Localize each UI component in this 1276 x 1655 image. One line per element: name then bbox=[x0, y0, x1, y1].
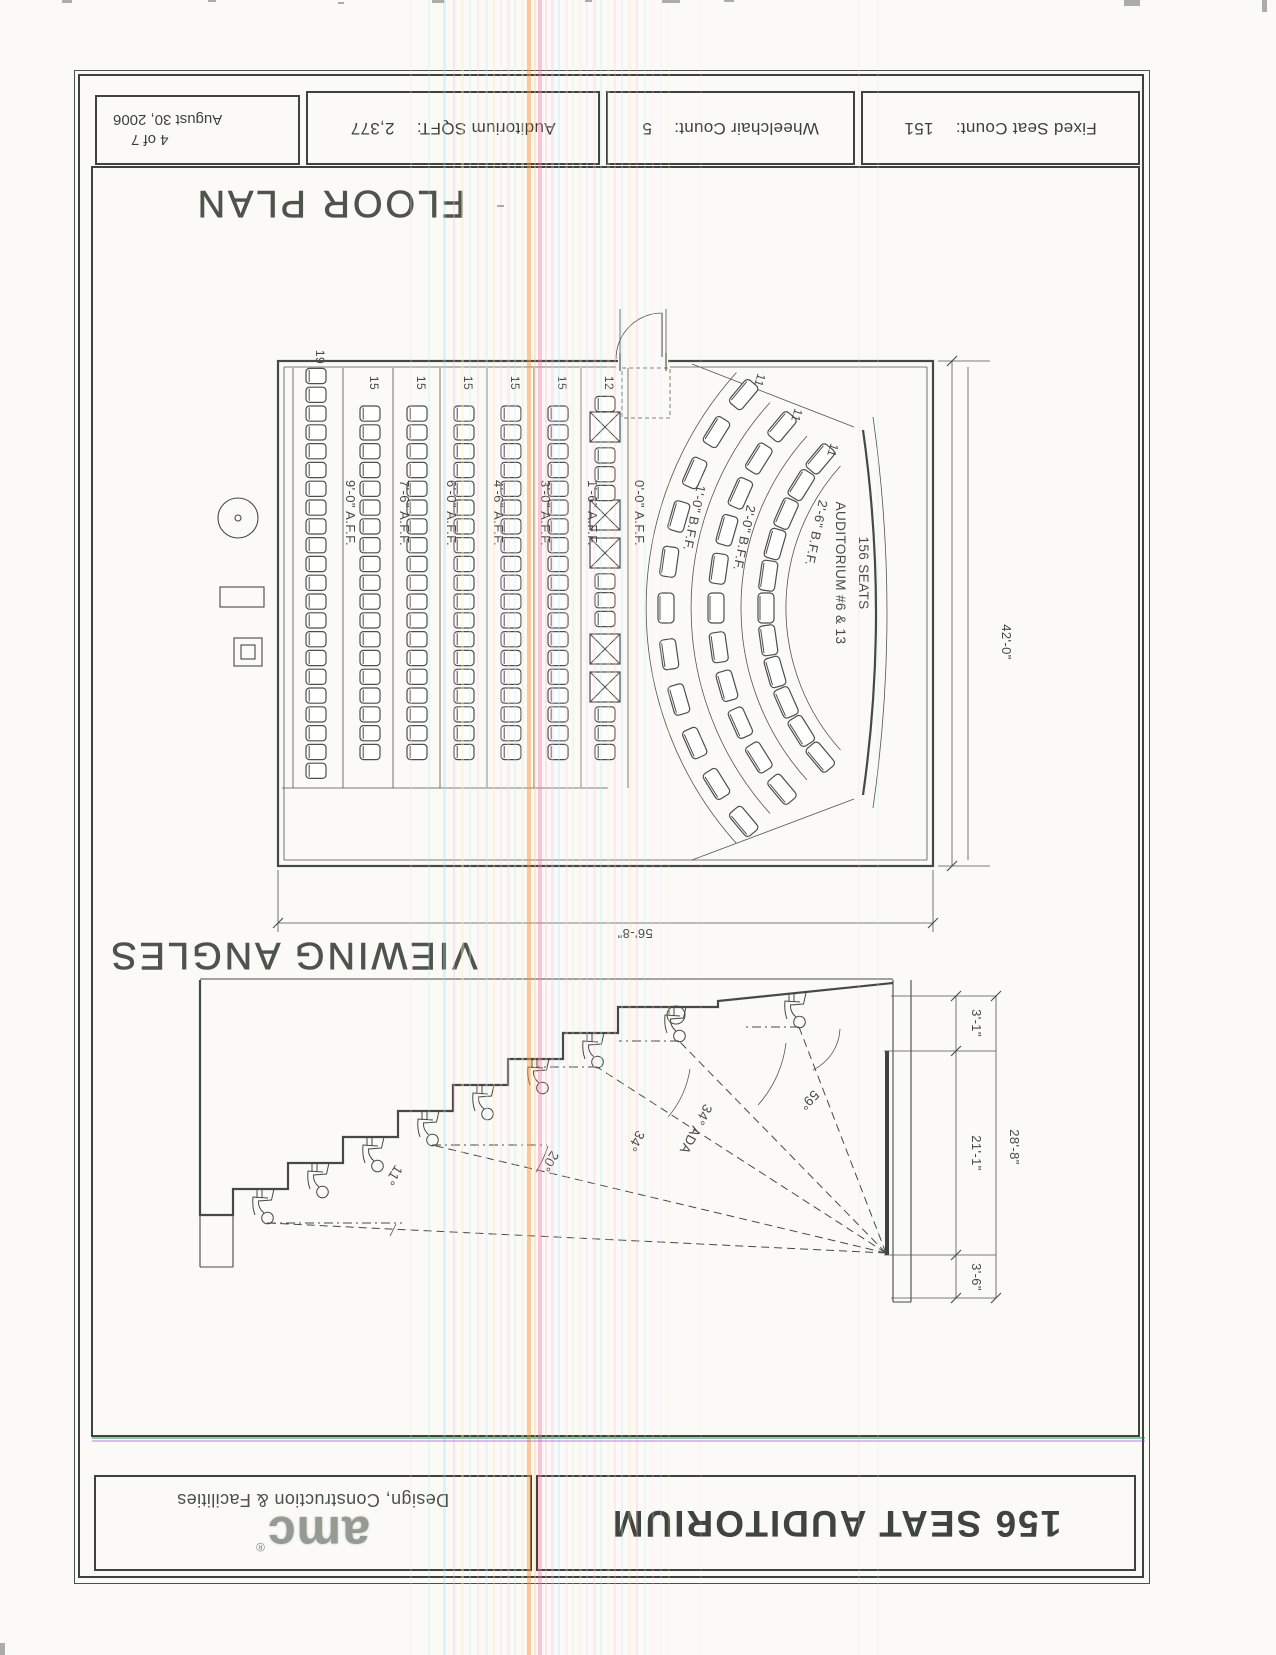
dim-below-screen: 3'-1" bbox=[969, 1009, 984, 1037]
projection-equipment bbox=[218, 498, 264, 666]
dim-screen-height: 21'-1" bbox=[969, 1135, 984, 1171]
svg-text:7'-6" A.F.F.: 7'-6" A.F.F. bbox=[397, 480, 412, 546]
svg-text:15: 15 bbox=[555, 376, 569, 390]
sight-lines bbox=[267, 1027, 886, 1253]
svg-text:1'-6" A.F.F.: 1'-6" A.F.F. bbox=[585, 480, 600, 546]
department-label: Design, Construction & Facilities bbox=[177, 1490, 449, 1511]
wheelchair-space bbox=[590, 672, 620, 702]
wheelchair-space bbox=[590, 634, 620, 664]
svg-text:19: 19 bbox=[313, 350, 327, 364]
section-dimensions: 3'-6" 21'-1" 3'-1" 28'-8" bbox=[884, 991, 1022, 1303]
svg-text:0'-0" A.F.F.: 0'-0" A.F.F. bbox=[632, 480, 647, 546]
svg-text:2'-0" B.F.F.: 2'-0" B.F.F. bbox=[730, 504, 759, 572]
auditorium-label-line2: 156 SEATS bbox=[856, 536, 871, 609]
viewing-angles-title: VIEWING ANGLES bbox=[108, 934, 477, 976]
screen-plan bbox=[863, 430, 876, 795]
svg-text:12: 12 bbox=[602, 376, 616, 390]
drawing-svg: 59° 34° ADA 34° 20° 11° 3'-6" 21'-1" 3'-… bbox=[93, 168, 1138, 1435]
fixed-seat-count-box: Fixed Seat Count: 151 bbox=[861, 91, 1140, 165]
svg-text:15: 15 bbox=[414, 376, 428, 390]
auditorium-sqft-box: Auditorium SQFT: 2,377 bbox=[306, 91, 600, 165]
row-seat-counts: 12 15 15 15 15 15 19 11 11 11 bbox=[313, 350, 842, 459]
svg-text:2'-6" B.F.F.: 2'-6" B.F.F. bbox=[802, 499, 831, 567]
svg-text:4'-6" A.F.F.: 4'-6" A.F.F. bbox=[491, 480, 506, 546]
dim-overall-height: 28'-8" bbox=[1007, 1129, 1022, 1165]
floor-plan-title: FLOOR PLAN bbox=[195, 182, 466, 224]
angle-label-back: 11° bbox=[382, 1163, 406, 1188]
rotated-sheet-content: 156 SEAT AUDITORIUM amc ® Design, Constr… bbox=[0, 0, 1276, 1655]
curved-row-arcs bbox=[646, 373, 840, 844]
date-box: 4 of 7 August 30, 2006 bbox=[95, 95, 300, 165]
svg-text:3'-0" A.F.F.: 3'-0" A.F.F. bbox=[538, 480, 553, 546]
wheelchair-space bbox=[590, 412, 620, 442]
straight-seat-rows bbox=[306, 368, 620, 778]
svg-text:6'-0" A.F.F.: 6'-0" A.F.F. bbox=[444, 480, 459, 546]
dim-above-screen: 3'-6" bbox=[969, 1263, 984, 1291]
angle-arcs bbox=[390, 1029, 840, 1236]
angle-label-row1: 34° bbox=[624, 1128, 647, 1154]
registered-mark-icon: ® bbox=[256, 1541, 265, 1555]
ada-wheelchair-figure bbox=[665, 1006, 686, 1042]
amc-logo: amc bbox=[267, 1513, 370, 1557]
wheelchair-count-box: Wheelchair Count: 5 bbox=[606, 91, 855, 165]
sheet-title: 156 SEAT AUDITORIUM bbox=[611, 1502, 1062, 1544]
auditorium-sqft-value: 2,377 bbox=[351, 118, 395, 138]
plan-depth-dim: 42'-0" bbox=[999, 624, 1014, 660]
viewing-angles-section: 59° 34° ADA 34° 20° 11° 3'-6" 21'-1" 3'-… bbox=[108, 934, 1022, 1303]
seated-figures bbox=[253, 993, 806, 1224]
auditorium-label-line1: AUDITORIUM #6 & 13 bbox=[833, 502, 848, 645]
angle-label-ada: 34° ADA bbox=[677, 1102, 716, 1157]
fixed-seat-count-value: 151 bbox=[904, 118, 933, 138]
svg-text:15: 15 bbox=[508, 376, 522, 390]
floor-plan: 0'-0" A.F.F. 1'-6" A.F.F. 3'-0" A.F.F. 4… bbox=[195, 182, 1014, 941]
svg-text:9'-0" A.F.F.: 9'-0" A.F.F. bbox=[343, 480, 358, 546]
svg-text:15: 15 bbox=[461, 376, 475, 390]
stadium-steps-outline bbox=[200, 980, 893, 1215]
auditorium-sqft-label: Auditorium SQFT: bbox=[417, 118, 556, 138]
svg-text:15: 15 bbox=[367, 376, 381, 390]
vestibule-dashed bbox=[622, 368, 670, 418]
plan-width-dim: 56'-8" bbox=[617, 926, 653, 941]
fixed-seat-count-label: Fixed Seat Count: bbox=[956, 118, 1097, 138]
projection-booth-wall bbox=[200, 1215, 233, 1267]
scanned-sheet: 156 SEAT AUDITORIUM amc ® Design, Constr… bbox=[0, 0, 1276, 1655]
door-swing-arc bbox=[616, 313, 662, 359]
plan-dimensions: 56'-8" 42'-0" bbox=[273, 356, 1014, 941]
wheelchair-count-label: Wheelchair Count: bbox=[674, 118, 819, 138]
sheet-number: 4 of 7 bbox=[113, 132, 169, 149]
angle-label-front: 59° bbox=[796, 1087, 822, 1113]
drawing-area: 59° 34° ADA 34° 20° 11° 3'-6" 21'-1" 3'-… bbox=[91, 166, 1140, 1437]
sheet-date: August 30, 2006 bbox=[113, 112, 222, 129]
title-block-brand: amc ® Design, Construction & Facilities bbox=[94, 1475, 532, 1571]
title-block-main: 156 SEAT AUDITORIUM bbox=[536, 1475, 1136, 1571]
wheelchair-count-value: 5 bbox=[642, 118, 652, 138]
brand-row: amc ® bbox=[256, 1513, 370, 1557]
